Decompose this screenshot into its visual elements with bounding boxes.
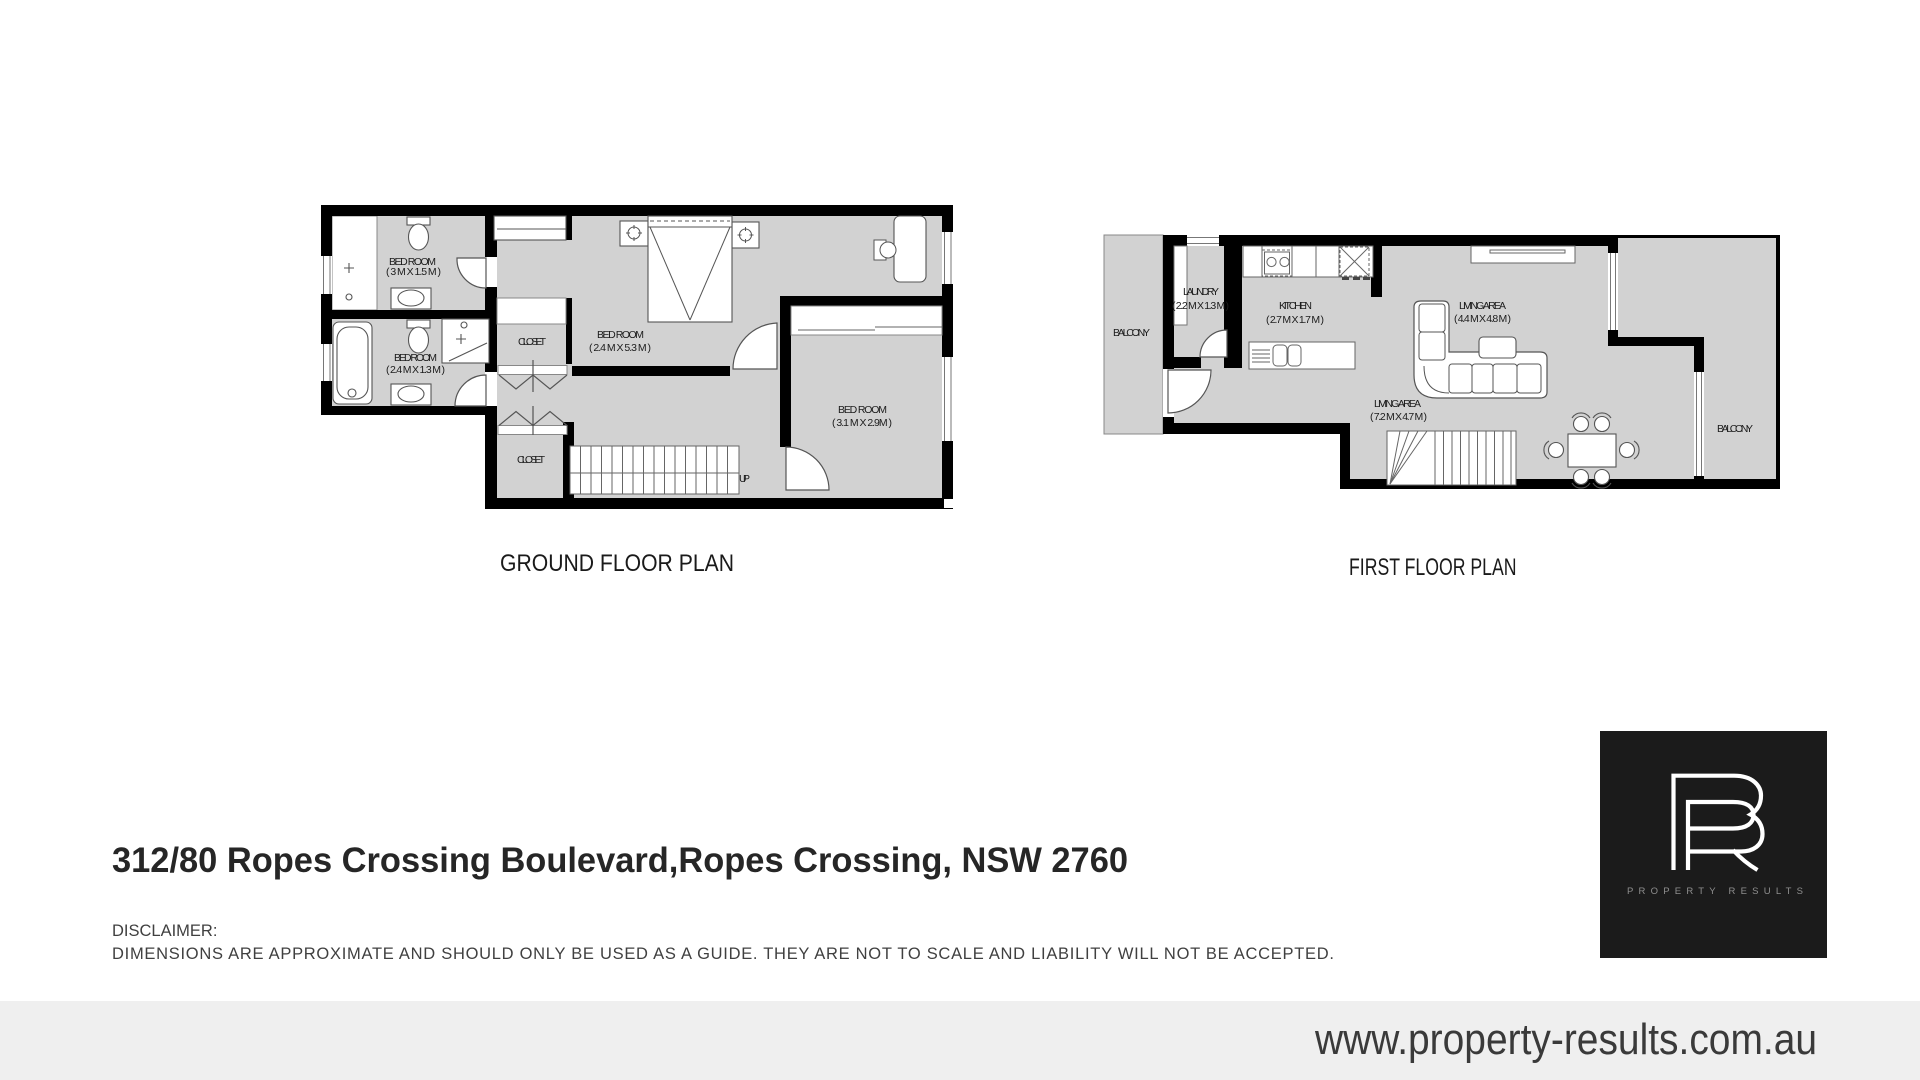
- svg-text:KITCHEN: KITCHEN: [1279, 300, 1312, 312]
- svg-text:CLOSET: CLOSET: [517, 454, 546, 466]
- svg-text:BED ROOM: BED ROOM: [597, 329, 644, 341]
- svg-text:LIVING AREA: LIVING AREA: [1459, 300, 1506, 312]
- svg-text:UP: UP: [739, 473, 750, 485]
- svg-text:BALCONY: BALCONY: [1717, 423, 1753, 435]
- svg-text:( 2.4 M X 5.3 M ): ( 2.4 M X 5.3 M ): [589, 342, 651, 354]
- svg-text:DISCLAIMER:: DISCLAIMER:: [112, 922, 217, 940]
- svg-text:FIRST FLOOR PLAN: FIRST FLOOR PLAN: [1349, 554, 1517, 581]
- svg-text:BED ROOM: BED ROOM: [394, 352, 437, 364]
- svg-text:www.property-results.com.au: www.property-results.com.au: [1314, 1015, 1817, 1064]
- svg-text:( 2.4 M X 1.3 M ): ( 2.4 M X 1.3 M ): [386, 364, 445, 376]
- svg-text:( 2.7 M X 1.7 M ): ( 2.7 M X 1.7 M ): [1266, 314, 1324, 326]
- svg-text:DIMENSIONS ARE APPROXIMATE AND: DIMENSIONS ARE APPROXIMATE AND SHOULD ON…: [112, 945, 1334, 963]
- svg-text:( 7.2 M X 4.7 M ): ( 7.2 M X 4.7 M ): [1370, 411, 1427, 423]
- svg-text:312/80 Ropes Crossing Boulevar: 312/80 Ropes Crossing Boulevard,Ropes Cr…: [112, 841, 1128, 880]
- svg-text:( 3.1 M X 2.9M ): ( 3.1 M X 2.9M ): [832, 417, 892, 429]
- svg-text:( 2.2 M X 1.3 M ): ( 2.2 M X 1.3 M ): [1172, 300, 1229, 312]
- svg-text:PROPERTY RESULTS: PROPERTY RESULTS: [1627, 886, 1803, 897]
- svg-text:LIVING AREA: LIVING AREA: [1374, 398, 1421, 410]
- svg-text:( 4.4 M X 4.8 M ): ( 4.4 M X 4.8 M ): [1454, 313, 1511, 325]
- svg-text:BED ROOM: BED ROOM: [838, 404, 887, 416]
- svg-text:LAUNDRY: LAUNDRY: [1183, 286, 1219, 298]
- svg-text:GROUND FLOOR PLAN: GROUND FLOOR PLAN: [500, 550, 734, 577]
- svg-text:( 3 M X 1.5 M ): ( 3 M X 1.5 M ): [386, 266, 441, 278]
- svg-text:CLOSET: CLOSET: [518, 336, 547, 348]
- svg-text:BALCONY: BALCONY: [1113, 327, 1150, 339]
